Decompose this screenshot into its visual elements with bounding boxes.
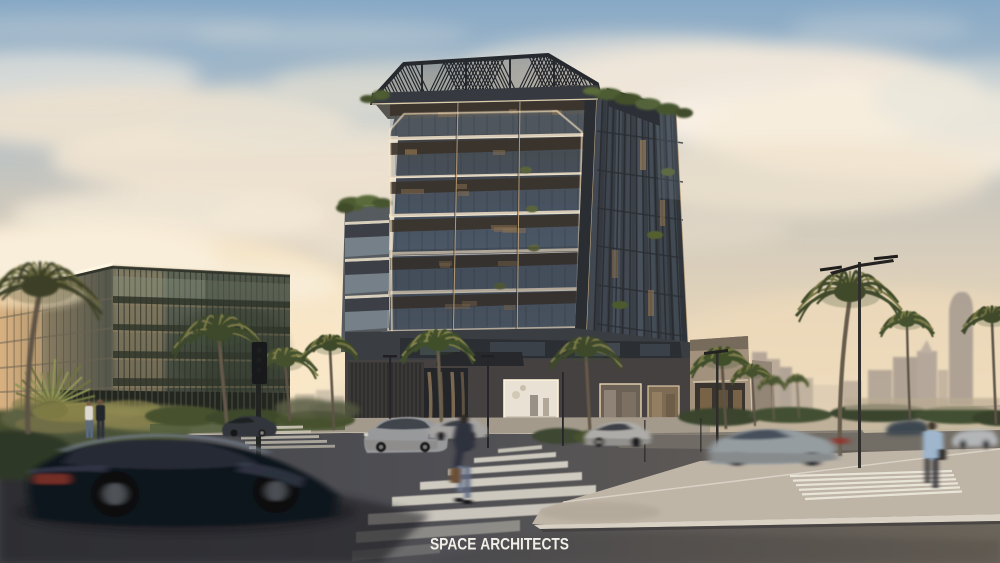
svg-text:SPACE ARCHITECTS: SPACE ARCHITECTS <box>430 535 569 554</box>
